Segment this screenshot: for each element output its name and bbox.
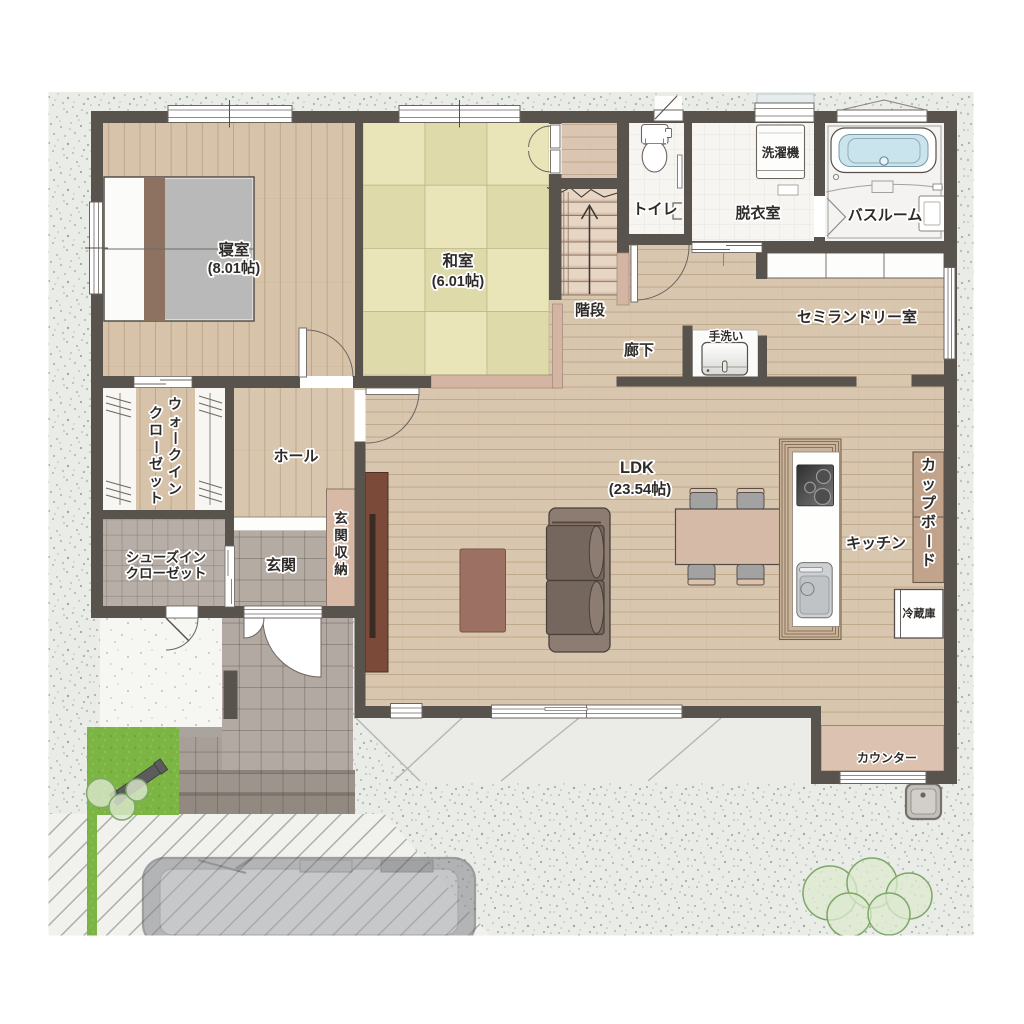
svg-text:冷蔵庫: 冷蔵庫: [903, 606, 936, 620]
svg-text:階段: 階段: [575, 301, 605, 319]
svg-text:ー: ー: [148, 440, 164, 454]
svg-text:シューズイン: シューズイン: [126, 549, 206, 565]
svg-text:ッ: ッ: [149, 473, 163, 489]
svg-text:ロ: ロ: [149, 422, 163, 438]
svg-text:納: 納: [334, 561, 348, 577]
svg-text:カウンター: カウンター: [857, 751, 917, 765]
svg-text:イ: イ: [168, 464, 182, 480]
svg-text:バスルーム: バスルーム: [848, 207, 923, 224]
svg-text:和室: 和室: [442, 251, 473, 270]
svg-text:洗濯機: 洗濯機: [762, 145, 800, 160]
svg-text:ゼ: ゼ: [149, 456, 163, 472]
svg-text:脱衣室: 脱衣室: [735, 204, 780, 222]
svg-text:玄関: 玄関: [266, 556, 296, 574]
svg-text:セミランドリー室: セミランドリー室: [797, 308, 917, 326]
svg-text:ト: ト: [149, 490, 163, 506]
svg-text:キッチン: キッチン: [846, 535, 906, 552]
svg-text:ー: ー: [167, 431, 183, 445]
svg-text:プ: プ: [921, 495, 937, 512]
svg-text:手洗い: 手洗い: [709, 329, 744, 343]
svg-text:ウ: ウ: [168, 396, 182, 412]
svg-text:ド: ド: [921, 552, 936, 569]
svg-text:ッ: ッ: [921, 476, 936, 493]
svg-text:玄: 玄: [334, 510, 348, 526]
svg-text:ホール: ホール: [273, 448, 318, 465]
svg-text:廊下: 廊下: [624, 341, 654, 359]
svg-text:ォ: ォ: [168, 413, 182, 429]
svg-text:(8.01帖): (8.01帖): [208, 259, 261, 277]
svg-text:ク: ク: [149, 405, 163, 421]
svg-text:(23.54帖): (23.54帖): [609, 480, 672, 498]
svg-text:収: 収: [334, 545, 348, 560]
svg-text:ン: ン: [168, 481, 182, 497]
svg-text:トイレ: トイレ: [632, 201, 677, 218]
svg-text:LDK: LDK: [620, 459, 654, 477]
svg-text:クローゼット: クローゼット: [126, 565, 207, 581]
svg-text:(6.01帖): (6.01帖): [432, 272, 485, 290]
svg-text:ク: ク: [168, 447, 182, 463]
svg-text:ボ: ボ: [921, 514, 936, 531]
svg-text:寝室: 寝室: [218, 240, 249, 259]
svg-text:関: 関: [334, 528, 348, 543]
svg-text:カ: カ: [921, 457, 936, 474]
svg-text:ー: ー: [920, 533, 937, 548]
